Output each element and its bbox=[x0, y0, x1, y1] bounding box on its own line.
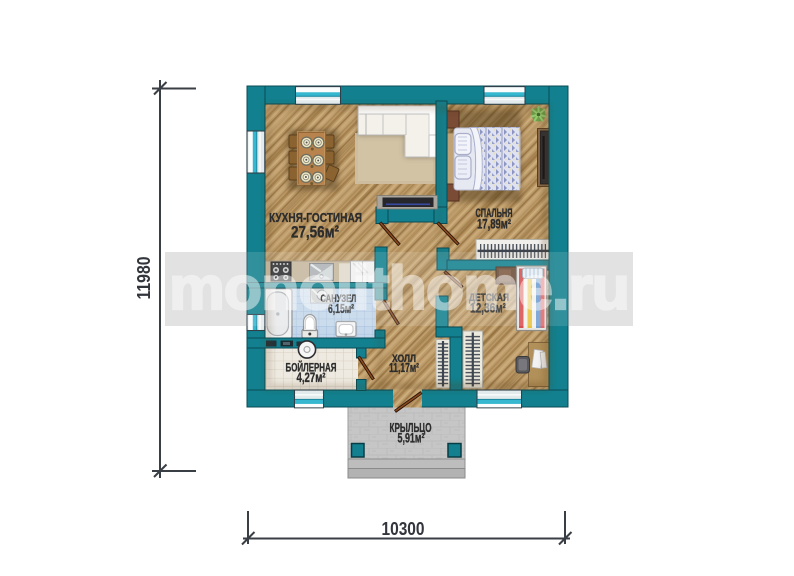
svg-text:4,27м²: 4,27м² bbox=[297, 370, 326, 385]
svg-text:10300: 10300 bbox=[382, 519, 425, 539]
svg-text:monolithome.ru: monolithome.ru bbox=[169, 254, 629, 322]
svg-text:5,91м²: 5,91м² bbox=[398, 431, 425, 446]
svg-text:17,89м²: 17,89м² bbox=[477, 216, 511, 232]
svg-text:11,17м²: 11,17м² bbox=[389, 360, 419, 375]
svg-text:11980: 11980 bbox=[134, 257, 154, 300]
svg-text:27,56м²: 27,56м² bbox=[291, 223, 339, 242]
